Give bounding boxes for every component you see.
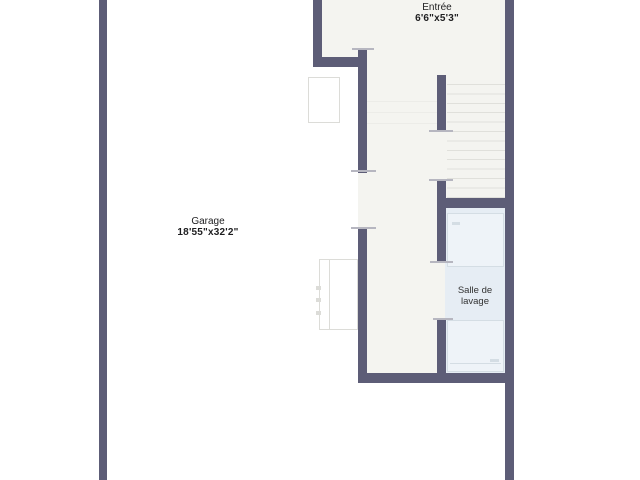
workbench-knob-icon	[316, 311, 321, 315]
wall-bottom	[358, 373, 510, 383]
dryer-handle-icon	[490, 359, 499, 362]
utility-panel	[308, 77, 340, 123]
dryer	[447, 320, 504, 372]
dryer-detail-line	[450, 363, 501, 364]
wall-stair-mid-upper	[437, 75, 446, 132]
washer-handle-icon	[452, 222, 460, 225]
garage-dimensions: 18'55"x32'2"	[148, 227, 268, 238]
floor-plan: Entrée 6'6"x5'3" Garage 18'55"x32'2" Sal…	[0, 0, 640, 480]
wall-hall-left-upper	[358, 50, 367, 173]
entree-name: Entrée	[377, 2, 497, 13]
stairs-lower-treads	[367, 101, 437, 125]
wall-garage-left	[99, 0, 107, 480]
jamb-stair-opening-top	[429, 130, 453, 132]
workbench-knob-icon	[316, 286, 321, 290]
jamb-garage-door-bottom	[351, 227, 376, 229]
wall-laundry-left-lower	[437, 320, 446, 380]
washer	[447, 213, 504, 267]
wall-right	[505, 0, 514, 480]
workbench	[319, 259, 358, 330]
workbench-edge-line	[329, 260, 330, 329]
garage-name: Garage	[148, 216, 268, 227]
jamb-entree-opening	[352, 48, 374, 50]
stairs-treads	[447, 84, 506, 199]
jamb-garage-door-top	[351, 170, 376, 172]
entree-dimensions: 6'6"x5'3"	[377, 13, 497, 24]
workbench-knob-icon	[316, 298, 321, 302]
garage-label: Garage 18'55"x32'2"	[148, 216, 268, 238]
jamb-stair-opening-bottom	[429, 179, 453, 181]
jamb-laundry-door-bottom	[433, 318, 453, 320]
entree-label: Entrée 6'6"x5'3"	[377, 2, 497, 24]
laundry-label: Salle de lavage	[446, 285, 504, 307]
jamb-laundry-door-top	[430, 261, 453, 263]
wall-hall-left-lower	[358, 228, 367, 383]
wall-stair-mid-lower	[437, 180, 446, 263]
wall-laundry-top	[437, 198, 514, 208]
